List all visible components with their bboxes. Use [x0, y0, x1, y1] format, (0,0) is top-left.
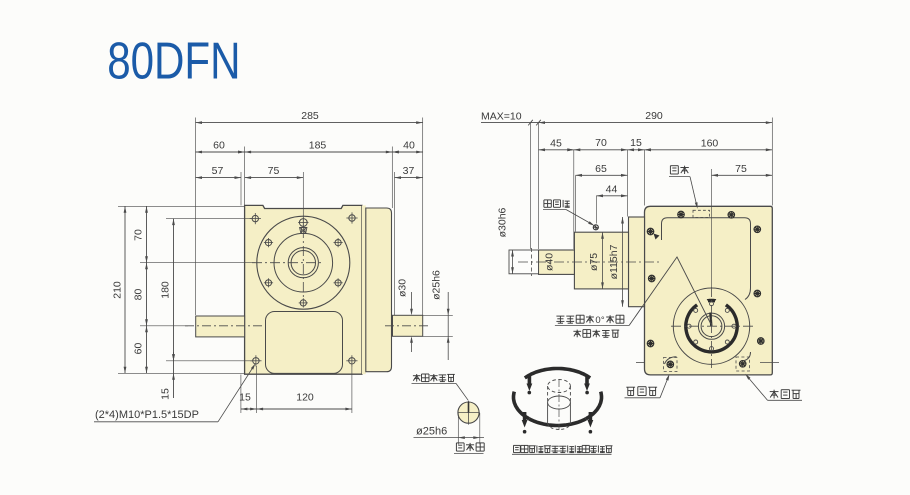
svg-text:65: 65 — [595, 163, 607, 175]
svg-text:185: 185 — [309, 140, 327, 152]
svg-text:80DFN: 80DFN — [107, 32, 240, 90]
svg-text:ø30h6: ø30h6 — [497, 207, 509, 237]
svg-text:40: 40 — [403, 140, 415, 152]
svg-text:ø115h7: ø115h7 — [608, 244, 620, 279]
svg-text:°: ° — [601, 315, 605, 326]
svg-text:160: 160 — [701, 137, 719, 149]
svg-text:57: 57 — [212, 165, 224, 177]
svg-text:MAX=10: MAX=10 — [481, 111, 522, 123]
svg-text:70: 70 — [595, 137, 607, 149]
svg-text:120: 120 — [296, 392, 314, 404]
svg-text:60: 60 — [213, 140, 225, 152]
svg-text:ø25h6: ø25h6 — [416, 426, 447, 438]
svg-text:ø40: ø40 — [544, 253, 556, 271]
svg-text:(2*4)M10*P1.5*15DP: (2*4)M10*P1.5*15DP — [95, 409, 199, 421]
svg-text:75: 75 — [268, 165, 280, 177]
svg-text:210: 210 — [112, 281, 124, 299]
svg-text:ø30: ø30 — [397, 279, 409, 297]
svg-text:15: 15 — [160, 388, 172, 400]
svg-text:290: 290 — [645, 110, 663, 122]
svg-text:37: 37 — [403, 165, 415, 177]
svg-text:80: 80 — [133, 289, 145, 301]
svg-text:15: 15 — [239, 392, 251, 404]
svg-text:285: 285 — [301, 110, 319, 122]
svg-text:180: 180 — [160, 281, 172, 299]
svg-text:45: 45 — [550, 137, 562, 149]
svg-text:15: 15 — [630, 137, 642, 149]
svg-text:44: 44 — [606, 183, 618, 195]
svg-text:0: 0 — [595, 315, 600, 326]
svg-text:60: 60 — [133, 343, 145, 355]
svg-text:75: 75 — [735, 163, 747, 175]
svg-text:70: 70 — [133, 229, 145, 241]
svg-text:ø25h6: ø25h6 — [431, 270, 443, 300]
svg-text:ø75: ø75 — [588, 253, 600, 271]
